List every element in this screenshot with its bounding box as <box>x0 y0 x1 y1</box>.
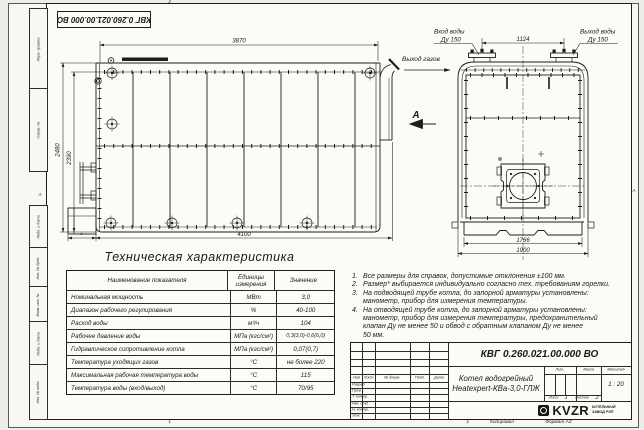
col-header-value: Значение <box>275 271 332 290</box>
inlet-label-line1: Вход воды <box>434 28 465 36</box>
param-name: Гидравлическое сопротивление котла <box>67 343 231 355</box>
stamp-name-cell: Котел водогрейный Heatexpert-КВа-3,0-ГЛЖ <box>448 366 544 401</box>
param-value: 104 <box>277 317 334 329</box>
tech-table-title: Техническая характеристика <box>66 250 333 264</box>
note-text: На отводящей трубе котла, до запорной ар… <box>363 307 629 341</box>
tech-table: Наименование показателя Единицы измерени… <box>66 270 335 395</box>
param-units: % <box>231 304 278 316</box>
param-value: 40-100 <box>277 304 334 316</box>
param-name: Максимальная рабочая температура воды <box>67 369 231 381</box>
inlet-label-line2: Ду 150 <box>440 37 461 44</box>
table-row: Рабочее давление воды МПа (кгс/см²) 0,3(… <box>67 329 334 342</box>
view-a-label: А <box>411 110 419 121</box>
stamp-col-izm: Изм <box>351 374 362 382</box>
table-row: Температура уходящих газов °С не более 2… <box>67 355 334 368</box>
outlet-label-line1: Выход воды <box>580 28 616 36</box>
table-row: Температура воды (вход/выход) °С 70/95 <box>67 381 334 394</box>
param-units: МВт <box>231 291 278 303</box>
manufacturer-logo-row: KVZR КОТЕЛЬНЫЙ ЗАВОД РЭП <box>448 401 635 419</box>
scale-label: Масштаб <box>601 366 631 374</box>
note-number: 4. <box>352 307 363 341</box>
table-row: Расход воды м³/ч 104 <box>67 316 334 329</box>
side-view <box>68 58 399 235</box>
note-text: На подводящей трубе котла, до запорной а… <box>363 290 629 307</box>
col-header-units: Единицы измерения <box>228 271 275 290</box>
stamp-doc-number: КВГ 0.260.021.00.000 ВО <box>448 343 631 366</box>
note-number: 1. <box>352 273 363 281</box>
table-row: Максимальная рабочая температура воды °С… <box>67 368 334 381</box>
dim-1900: 1900 <box>516 248 530 254</box>
param-name: Температура уходящих газов <box>67 356 231 368</box>
param-value: 115 <box>277 369 334 381</box>
param-value: 70/95 <box>277 382 334 394</box>
stamp-col-data: Дата <box>429 374 448 382</box>
engineering-drawing-page: { "doc": { "number": "КВГ 0.260.021.00.0… <box>0 0 644 430</box>
note-number: 2. <box>352 281 363 289</box>
table-header-row: Наименование показателя Единицы измерени… <box>67 271 334 290</box>
table-row: Номинальная мощность МВт 3,0 <box>67 290 334 303</box>
note-item: 3. На подводящей трубе котла, до запорно… <box>352 290 629 307</box>
mass-label: Масса <box>576 366 601 374</box>
product-model: Heatexpert-КВа-3,0-ГЛЖ <box>452 384 539 394</box>
note-item: 2. Размер* выбирается индивидуально согл… <box>352 281 629 289</box>
burner-plate <box>493 156 553 216</box>
param-name: Диапазон рабочего регулирования <box>67 304 231 316</box>
param-units: °С <box>231 356 278 368</box>
copied-zone-digit: 1 <box>466 420 469 425</box>
param-value: 0,07(0,7) <box>277 343 334 355</box>
stamp-col-podp: Подп. <box>410 374 429 382</box>
dim-star: * <box>80 233 83 240</box>
note-item: 4. На отводящей трубе котла, до запорной… <box>352 307 629 341</box>
front-view <box>452 46 594 260</box>
outlet-label-line2: Ду 150 <box>587 37 608 44</box>
side-bracket <box>80 162 96 204</box>
dim-2390: 2390 <box>67 151 73 166</box>
chimney <box>380 59 399 140</box>
front-view-dimensions <box>434 38 618 257</box>
kvzr-logo-text: KVZR <box>552 403 589 418</box>
col-header-name: Наименование показателя <box>67 271 228 290</box>
param-value: 0,3(3,0)-0,6(6,0) <box>277 330 334 342</box>
burner <box>68 208 96 234</box>
stamp-col-list: Лист <box>362 374 375 382</box>
stamp-col-dokum: № докум. <box>375 374 410 382</box>
dim-1124: 1124 <box>517 37 531 43</box>
gas-outlet-label: Выход газов <box>402 55 440 63</box>
stamp-row-utv: Утв. <box>352 413 375 419</box>
table-row: Диапазон рабочего регулирования % 40-100 <box>67 303 334 316</box>
dim-4100: 4100 <box>237 232 251 238</box>
scale-value: 1 : 20 <box>601 374 631 395</box>
param-value: 3,0 <box>277 291 334 303</box>
param-name: Рабочее давление воды <box>67 330 231 342</box>
dim-3870: 3870 <box>232 39 246 45</box>
product-name: Котел водогрейный <box>459 374 533 384</box>
param-value: не более 220 <box>277 356 334 368</box>
format-label: Формат А3 <box>545 420 571 425</box>
param-name: Номинальная мощность <box>67 291 231 303</box>
param-units: °С <box>231 382 278 394</box>
param-units: МПа (кгс/см²) <box>231 343 278 355</box>
kvzr-logo-subtitle: КОТЕЛЬНЫЙ ЗАВОД РЭП <box>592 405 631 415</box>
param-units: м³/ч <box>231 317 278 329</box>
copied-label: Копировал <box>490 420 514 425</box>
note-number: 3. <box>352 290 363 307</box>
dim-1766: 1766 <box>516 238 530 244</box>
param-units: МПа (кгс/см²) <box>231 330 278 342</box>
param-name: Расход воды <box>67 317 231 329</box>
lit-label: Лит. <box>544 366 576 374</box>
side-view-dimensions <box>60 41 393 241</box>
param-units: °С <box>231 369 278 381</box>
gear-icon <box>538 405 549 416</box>
param-name: Температура воды (вход/выход) <box>67 382 231 394</box>
dim-2480: 2480 <box>56 143 62 158</box>
table-row: Гидравлическое сопротивление котла МПа (… <box>67 342 334 355</box>
notes-block: 1. Все размеры для справок, допустимые о… <box>352 273 629 340</box>
title-block: Изм Лист № докум. Подп. Дата Разраб. Про… <box>350 342 632 420</box>
note-text: Размер* выбирается индивидуально согласн… <box>363 281 629 289</box>
